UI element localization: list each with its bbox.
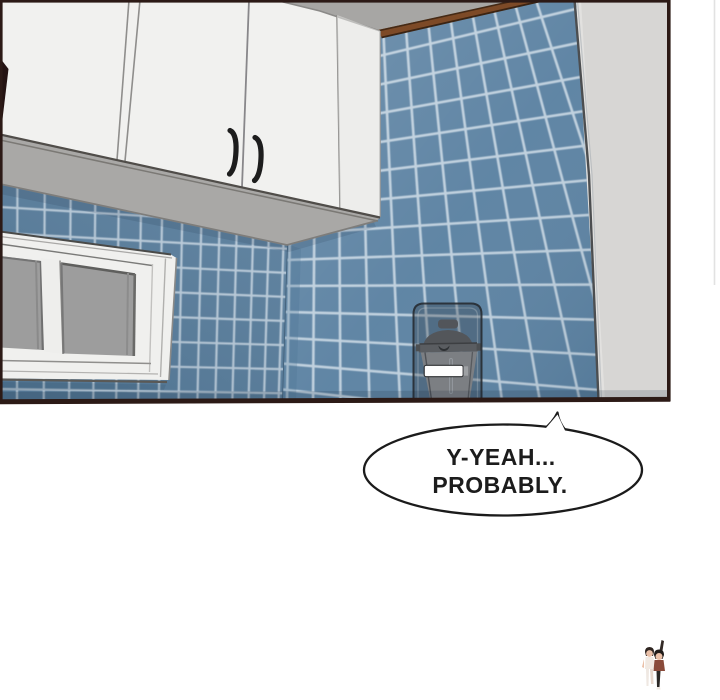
svg-text:Y-YEAH...: Y-YEAH... [446, 444, 555, 470]
svg-text:PROBABLY.: PROBABLY. [432, 472, 567, 498]
